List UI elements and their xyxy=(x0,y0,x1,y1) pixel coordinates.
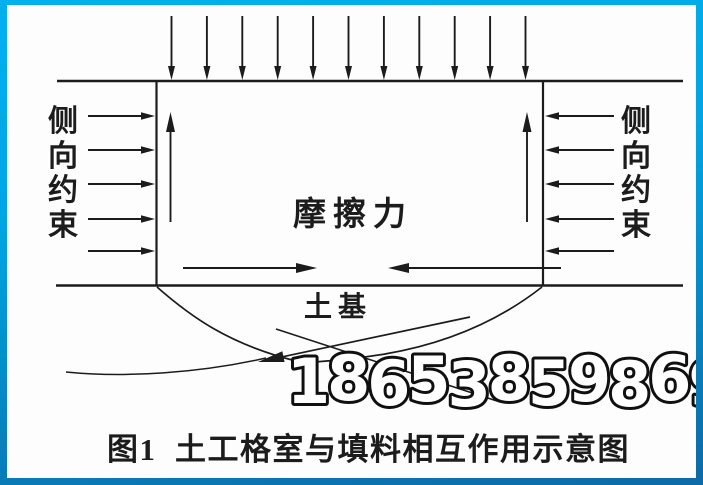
right-constraint-label: 侧向约束 xyxy=(619,105,653,243)
figure-caption: 图1 土工格室与填料相互作用示意图 xyxy=(107,434,630,465)
friction-label: 摩擦力 xyxy=(293,199,413,232)
figure-frame: 18653859869 侧向约束 侧向约束 摩擦力 土基 图1 土工格室与填料相… xyxy=(0,0,703,485)
left-constraint-arrows xyxy=(88,112,155,255)
right-constraint-arrows xyxy=(545,112,614,255)
friction-arrows xyxy=(183,263,561,273)
diagram-drawing: 18653859869 xyxy=(7,5,696,478)
watermark-text: 18653859869 xyxy=(287,342,696,421)
surcharge-down-arrows xyxy=(168,16,529,80)
figure-canvas: 18653859869 侧向约束 侧向约束 摩擦力 土基 图1 土工格室与填料相… xyxy=(7,5,696,478)
left-corner-slip-curve xyxy=(157,287,296,361)
left-constraint-label: 侧向约束 xyxy=(46,105,80,243)
subgrade-label: 土基 xyxy=(304,294,372,322)
deep-slip-curve xyxy=(66,358,266,374)
